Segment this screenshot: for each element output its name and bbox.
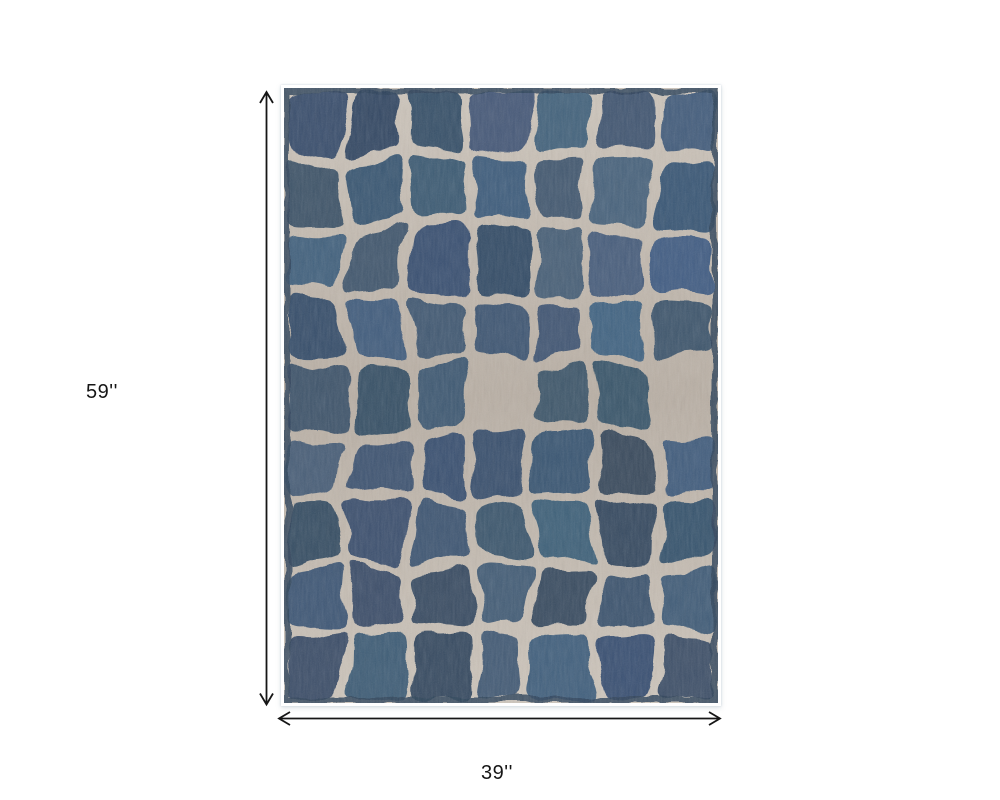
- product-dimension-diagram: 59'' 39'': [0, 0, 1000, 800]
- width-dimension-label: 39'': [452, 762, 542, 784]
- rug-image: [281, 85, 721, 706]
- height-dimension-label: 59'': [57, 381, 147, 403]
- rug-pattern: [284, 88, 718, 703]
